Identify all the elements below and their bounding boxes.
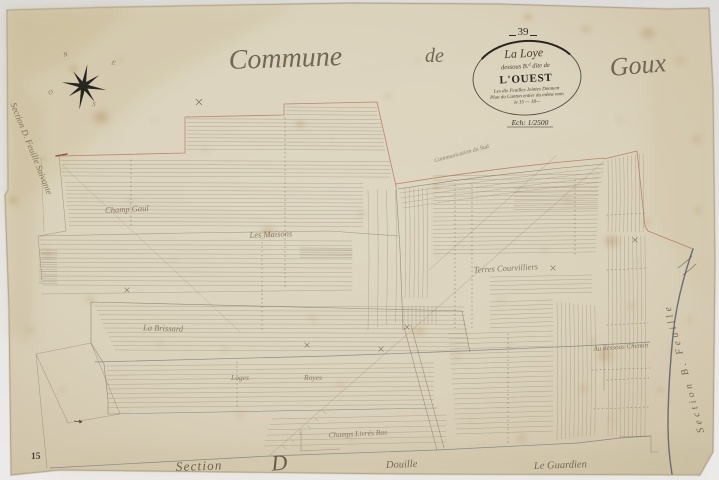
svg-text:de: de bbox=[425, 45, 444, 67]
svg-text:La Brissard: La Brissard bbox=[142, 322, 184, 333]
svg-text:Section: Section bbox=[176, 457, 223, 474]
svg-text:Commune: Commune bbox=[228, 41, 343, 76]
svg-text:Le Guardien: Le Guardien bbox=[533, 459, 587, 472]
svg-text:Les Maisons: Les Maisons bbox=[248, 228, 293, 240]
svg-text:Ech: 1/2500: Ech: 1/2500 bbox=[511, 118, 549, 127]
svg-text:Douille: Douille bbox=[385, 459, 418, 471]
svg-text:15: 15 bbox=[31, 452, 41, 462]
svg-text:D: D bbox=[269, 450, 288, 476]
svg-text:Goux: Goux bbox=[608, 48, 667, 82]
svg-text:La Loye: La Loye bbox=[503, 45, 544, 61]
svg-text:Royes: Royes bbox=[303, 373, 322, 382]
svg-text:39: 39 bbox=[518, 26, 530, 38]
svg-text:Loges: Loges bbox=[230, 373, 249, 382]
